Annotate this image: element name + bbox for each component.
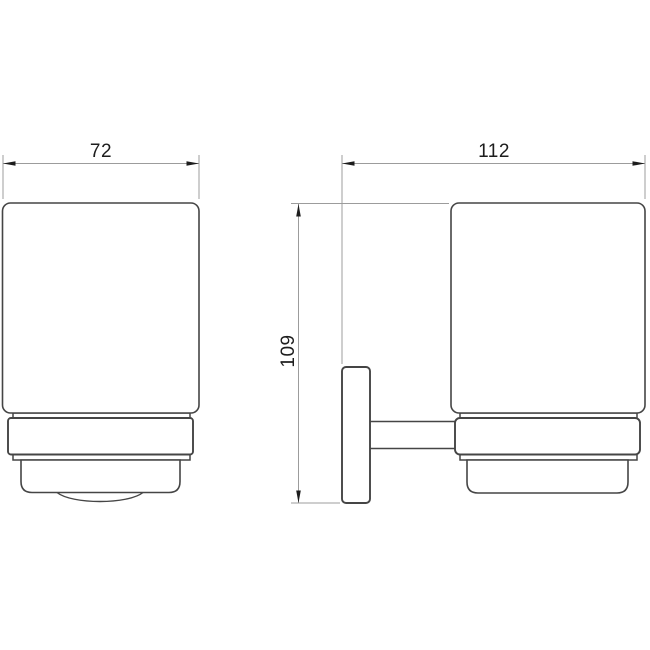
- glass-bottom-arc: [57, 493, 143, 502]
- front-view: [3, 203, 200, 502]
- arrow-right-icon: [633, 161, 646, 166]
- glass-base-front: [21, 460, 180, 493]
- dim-label-front-width: 72: [90, 141, 112, 162]
- arrow-right-icon: [187, 161, 200, 166]
- holder-ring-front: [8, 418, 193, 455]
- arrow-up-icon: [296, 204, 301, 217]
- glass-base-side: [467, 460, 628, 493]
- arrow-down-icon: [296, 491, 301, 504]
- holder-ring-side: [455, 418, 640, 455]
- arrow-left-icon: [342, 161, 355, 166]
- tumbler-cup-front: [3, 203, 200, 413]
- dim-label-side-height: 109: [278, 334, 299, 367]
- tumbler-holder-drawing: 72 112 109: [0, 0, 650, 650]
- technical-drawing-canvas: 72 112 109: [0, 0, 650, 650]
- arrow-left-icon: [3, 161, 16, 166]
- dim-label-side-width: 112: [478, 141, 510, 162]
- wall-plate: [342, 367, 370, 503]
- tumbler-cup-side: [451, 203, 645, 413]
- side-view: [342, 203, 645, 503]
